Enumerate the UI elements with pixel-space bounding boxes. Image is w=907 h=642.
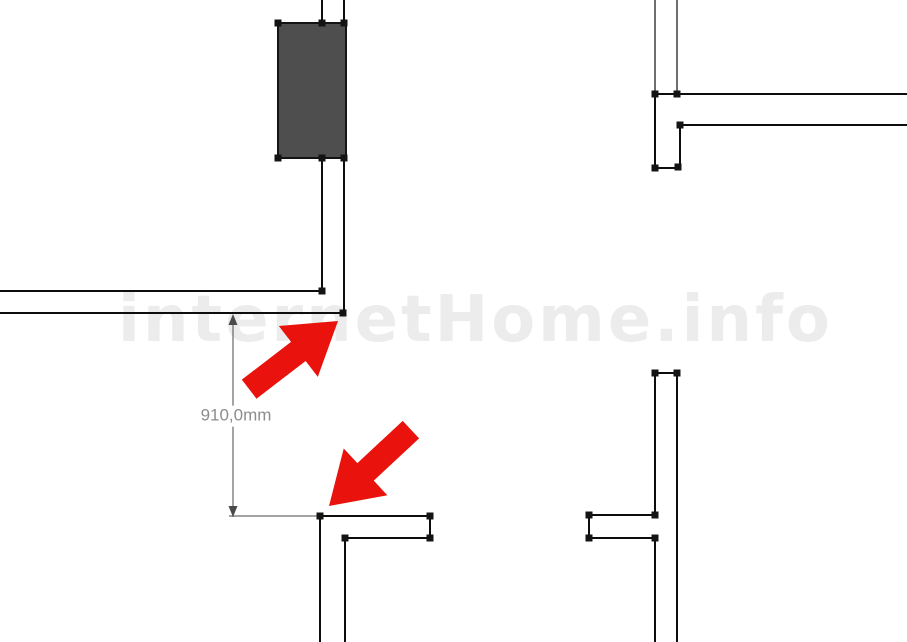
selection-handle[interactable] [319, 155, 326, 162]
selection-handle[interactable] [427, 535, 434, 542]
selection-handle[interactable] [319, 288, 326, 295]
floorplan-drawing [0, 0, 907, 642]
selection-handle[interactable] [677, 122, 684, 129]
selection-handle[interactable] [275, 155, 282, 162]
door-element[interactable] [278, 23, 346, 158]
selection-handle[interactable] [675, 164, 682, 171]
selection-handle[interactable] [319, 20, 326, 27]
dimension-arrowhead-down-icon [229, 506, 238, 517]
selection-handle[interactable] [317, 513, 324, 520]
selection-handle[interactable] [674, 91, 681, 98]
dimension-label: 910,0mm [198, 406, 275, 427]
selection-handle[interactable] [586, 512, 593, 519]
selection-handle[interactable] [340, 310, 347, 317]
floorplan-canvas[interactable]: internetHome.info 910,0mm [0, 0, 907, 642]
selection-handle[interactable] [341, 20, 348, 27]
selection-handle[interactable] [652, 370, 659, 377]
selection-handle[interactable] [652, 91, 659, 98]
dimension-arrowhead-up-icon [229, 314, 238, 325]
selection-handle[interactable] [586, 535, 593, 542]
selection-handle[interactable] [341, 155, 348, 162]
selection-handle[interactable] [427, 513, 434, 520]
red-arrow-lower-icon [307, 406, 433, 529]
selection-handle[interactable] [342, 535, 349, 542]
selection-handle[interactable] [652, 535, 659, 542]
selection-handle[interactable] [652, 512, 659, 519]
selection-handle[interactable] [652, 165, 659, 172]
selection-handle[interactable] [275, 20, 282, 27]
selection-handle[interactable] [674, 370, 681, 377]
